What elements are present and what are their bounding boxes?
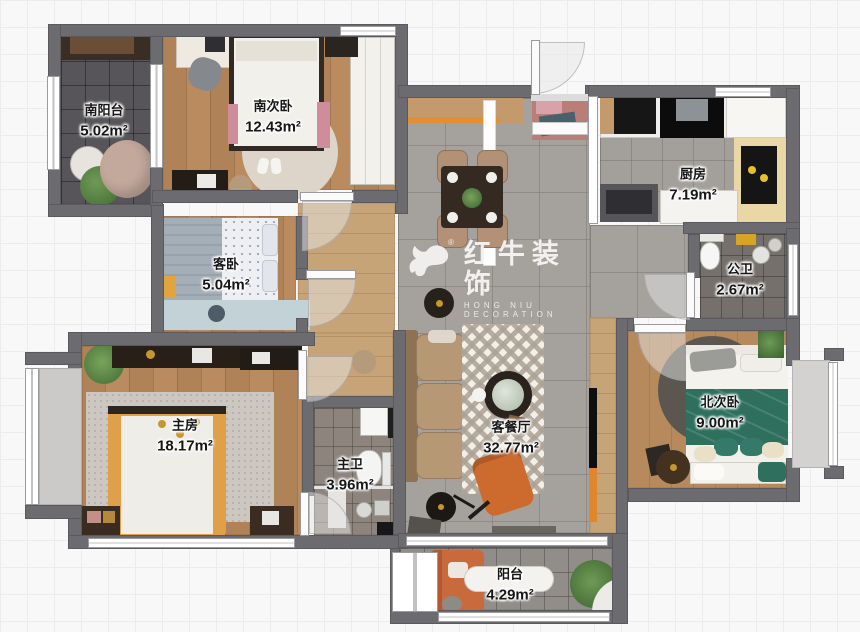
guest-bench <box>164 300 310 330</box>
bay-window <box>25 368 39 505</box>
room-name: 主房 <box>157 417 213 436</box>
master-headboard <box>108 406 226 414</box>
window <box>715 87 771 97</box>
floor-plan: ® 红牛装饰 HONG NIU DECORATION 南阳台 5.02m² 南次… <box>0 0 860 632</box>
wall-segment <box>48 204 164 217</box>
balcony-cabinet-top <box>70 34 134 54</box>
room-label-master-bath: 主卫 3.96m² <box>326 456 374 497</box>
room-name: 公卫 <box>716 261 764 280</box>
room-area: 4.29m² <box>486 585 534 607</box>
kitchen-sink-counter <box>726 92 786 138</box>
room-name: 南阳台 <box>80 102 128 121</box>
entry-bench <box>532 122 588 135</box>
wall-segment <box>151 204 164 346</box>
centerpiece-plant <box>462 188 482 208</box>
nightstand-pad <box>103 511 115 523</box>
wall-segment <box>152 190 298 203</box>
shower-drain-round <box>356 502 372 518</box>
room-area: 3.96m² <box>326 475 374 497</box>
room-name: 南次卧 <box>245 98 301 117</box>
room-area: 32.77m² <box>483 438 539 460</box>
green-pillow <box>740 438 764 456</box>
shell-decor <box>208 305 225 322</box>
sliding-window <box>406 536 608 546</box>
kitchen-sliding-door <box>588 96 598 224</box>
room-label-south-balcony: 南阳台 5.02m² <box>80 102 128 143</box>
kitchen-cabinet <box>600 98 614 134</box>
room-name: 主卫 <box>326 456 374 475</box>
balcony-door-panel <box>392 552 438 612</box>
room-area: 7.19m² <box>669 185 717 207</box>
room-area: 12.43m² <box>245 117 301 139</box>
pillow <box>262 224 278 256</box>
wall-segment <box>786 318 800 366</box>
room-label-balcony: 阳台 4.29m² <box>486 566 534 607</box>
wall-segment <box>68 332 315 346</box>
bay-window-sill <box>792 360 830 468</box>
sofa-cushion <box>416 432 466 479</box>
white-cushion <box>694 464 724 480</box>
toilet-tank <box>382 452 391 486</box>
sofa-cushion <box>416 383 466 430</box>
yellow-cushion <box>164 276 176 298</box>
door-leaf-master-bath <box>300 492 309 536</box>
room-label-public-bath: 公卫 2.67m² <box>716 261 764 302</box>
wall-segment <box>395 24 408 214</box>
nightstand-pad <box>262 511 279 525</box>
magazine <box>192 348 212 363</box>
wall-segment <box>628 488 800 502</box>
coffee-table-glass <box>492 379 524 411</box>
plate <box>447 212 458 223</box>
window <box>788 244 798 316</box>
door-leaf-public-bath <box>686 272 695 318</box>
stool <box>352 350 376 374</box>
plate <box>447 172 458 183</box>
wall-segment <box>302 396 314 496</box>
window <box>438 612 610 622</box>
registered-mark: ® <box>448 238 454 247</box>
cream-pillow <box>762 442 784 458</box>
entry-mat-patch <box>536 100 562 114</box>
room-area: 9.00m² <box>696 413 744 435</box>
shower-head <box>768 238 782 252</box>
window <box>47 76 60 170</box>
bull-logo-icon <box>406 240 452 280</box>
plate <box>486 172 497 183</box>
room-label-south-bedroom: 南次卧 12.43m² <box>245 98 301 139</box>
saucer <box>472 388 486 402</box>
room-area: 5.02m² <box>80 121 128 143</box>
plate <box>486 212 497 223</box>
room-label-living-dining: 客餐厅 32.77m² <box>483 419 539 460</box>
watermark-text: 红牛装饰 HONG NIU DECORATION <box>464 240 596 319</box>
room-area: 5.04m² <box>202 275 250 297</box>
wall-segment <box>25 352 82 365</box>
wall-segment <box>683 222 800 234</box>
room-name: 客卧 <box>202 256 250 275</box>
wall-segment <box>686 318 800 331</box>
gold-decor <box>146 350 155 359</box>
watermark: ® 红牛装饰 HONG NIU DECORATION <box>406 240 596 296</box>
door-leaf-guest-bedroom <box>306 270 356 279</box>
nightstand-pad <box>87 511 101 523</box>
entry-door-swing <box>533 42 585 94</box>
entry-threshold <box>531 94 588 101</box>
room-label-guest-bedroom: 客卧 5.04m² <box>202 256 250 297</box>
papers <box>252 352 270 364</box>
wall-segment <box>352 190 398 203</box>
laptop <box>205 37 225 52</box>
lamp-bulb <box>438 504 444 510</box>
room-label-kitchen: 厨房 7.19m² <box>669 166 717 207</box>
wall-segment <box>25 505 82 519</box>
kitchen-appliance-door <box>606 190 652 214</box>
entry-door-leaf <box>531 40 540 95</box>
cream-pillow <box>694 446 716 462</box>
bull-logo-svg <box>406 240 452 280</box>
wall-segment <box>612 533 628 624</box>
green-cushion <box>758 462 786 482</box>
sofa-pillow <box>428 330 456 343</box>
room-area: 18.17m² <box>157 436 213 458</box>
wall-segment <box>616 318 628 535</box>
watermark-subtitle: HONG NIU DECORATION <box>464 301 596 319</box>
bay-window <box>828 362 838 466</box>
window <box>340 26 396 36</box>
tv <box>589 388 597 468</box>
plant <box>758 330 784 358</box>
room-name: 厨房 <box>669 166 717 185</box>
window <box>150 64 163 168</box>
door-leaf-master <box>298 350 307 400</box>
burner-flame <box>760 174 768 182</box>
slipper <box>270 158 282 175</box>
room-label-master-bedroom: 主房 18.17m² <box>157 417 213 458</box>
green-pillow <box>714 438 738 456</box>
room-area: 2.67m² <box>716 280 764 302</box>
bay-window-sill <box>39 368 82 505</box>
hall-console <box>240 348 300 370</box>
pink-throw <box>317 102 330 148</box>
room-name: 阳台 <box>486 566 534 585</box>
room-name: 北次卧 <box>696 394 744 413</box>
pillow <box>262 260 278 292</box>
wall-segment <box>786 88 800 234</box>
papers <box>197 174 216 188</box>
beanbag-chair <box>100 140 154 198</box>
oven-screen <box>676 99 708 121</box>
door-leaf-north-bedroom <box>634 324 686 333</box>
burner-flame <box>748 166 756 174</box>
bed-pillows-south <box>236 41 317 61</box>
wall-segment <box>393 330 406 535</box>
gold-decor <box>436 300 443 307</box>
window <box>88 538 295 548</box>
room-label-north-bedroom: 北次卧 9.00m² <box>696 394 744 435</box>
watermark-brand: 红牛装饰 <box>464 240 596 299</box>
cooktop <box>741 146 777 204</box>
wall-segment <box>398 85 535 98</box>
door-leaf-south-bedroom <box>300 192 354 201</box>
room-name: 客餐厅 <box>483 419 539 438</box>
gold-decor <box>670 464 677 471</box>
orange-cabinet <box>589 468 597 522</box>
bath-vanity <box>360 406 388 436</box>
wardrobe <box>350 37 395 185</box>
shower-fixture <box>374 500 390 516</box>
pink-throw <box>228 104 238 144</box>
floor-drain <box>377 522 394 535</box>
